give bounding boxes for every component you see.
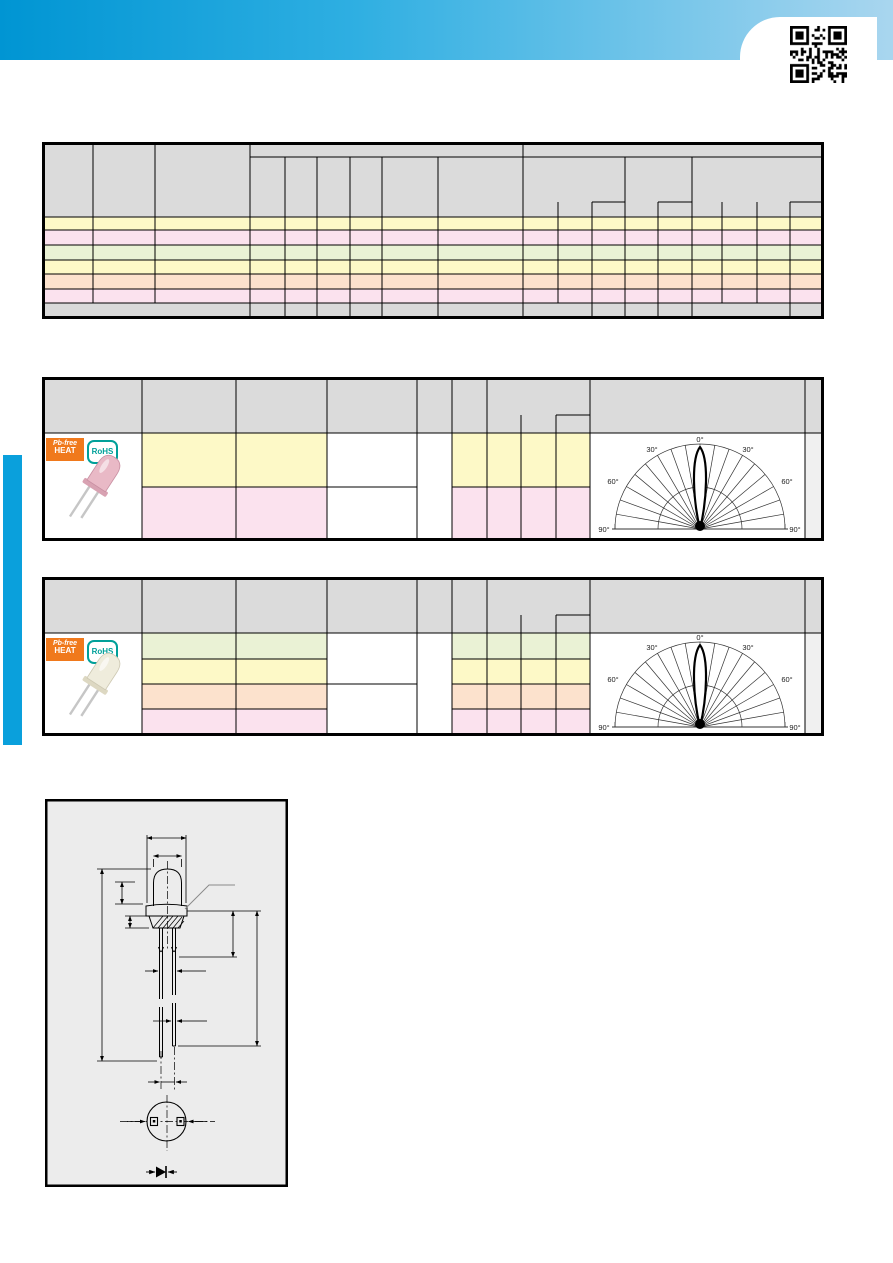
- polar-30r-label: 30°: [742, 445, 753, 454]
- diode-symbol: [146, 1166, 177, 1178]
- polar-90l-label: 90°: [598, 723, 609, 732]
- table1-row-pink-1: [45, 230, 821, 245]
- polar-30r-label: 30°: [742, 643, 753, 652]
- polar-0-label: 0°: [696, 435, 703, 444]
- polar-0-label: 0°: [696, 633, 703, 642]
- dimension-lines: [97, 835, 261, 1122]
- polar-90l-label: 90°: [598, 525, 609, 534]
- led-outline: [146, 869, 187, 1057]
- table1-row-green: [45, 245, 821, 260]
- polar-60r-label: 60°: [781, 675, 792, 684]
- polar-90r-label: 90°: [789, 723, 800, 732]
- datasheet-page: Pb-free HEAT RoHS 0°: [0, 0, 893, 1263]
- polar-30l-label: 30°: [646, 643, 657, 652]
- polar-60l-label: 60°: [607, 675, 618, 684]
- spec-table-1: [42, 142, 824, 319]
- led-photo-clear: [66, 650, 138, 732]
- polar-60l-label: 60°: [607, 477, 618, 486]
- section-accent-bar: [3, 455, 22, 745]
- table1-row-yellow-2: [45, 260, 821, 274]
- table1-footer-row: [45, 303, 821, 316]
- polar-60r-label: 60°: [781, 477, 792, 486]
- dimension-drawing: [45, 799, 288, 1187]
- table1-row-pink-2: [45, 289, 821, 303]
- radiation-pattern-chart-1: 0° 30° 30° 60° 60° 90° 90°: [593, 434, 804, 536]
- leader-line: [185, 885, 235, 909]
- table2-side-column: [805, 433, 821, 538]
- led-photo-red: [66, 452, 138, 534]
- polar-90r-label: 90°: [789, 525, 800, 534]
- table3-side-column: [805, 633, 821, 733]
- qr-code-icon: [790, 26, 847, 83]
- table1-row-orange: [45, 274, 821, 289]
- polar-30l-label: 30°: [646, 445, 657, 454]
- radiation-pattern-chart-2: 0° 30° 30° 60° 60° 90° 90°: [593, 632, 804, 734]
- table1-row-yellow-1: [45, 217, 821, 230]
